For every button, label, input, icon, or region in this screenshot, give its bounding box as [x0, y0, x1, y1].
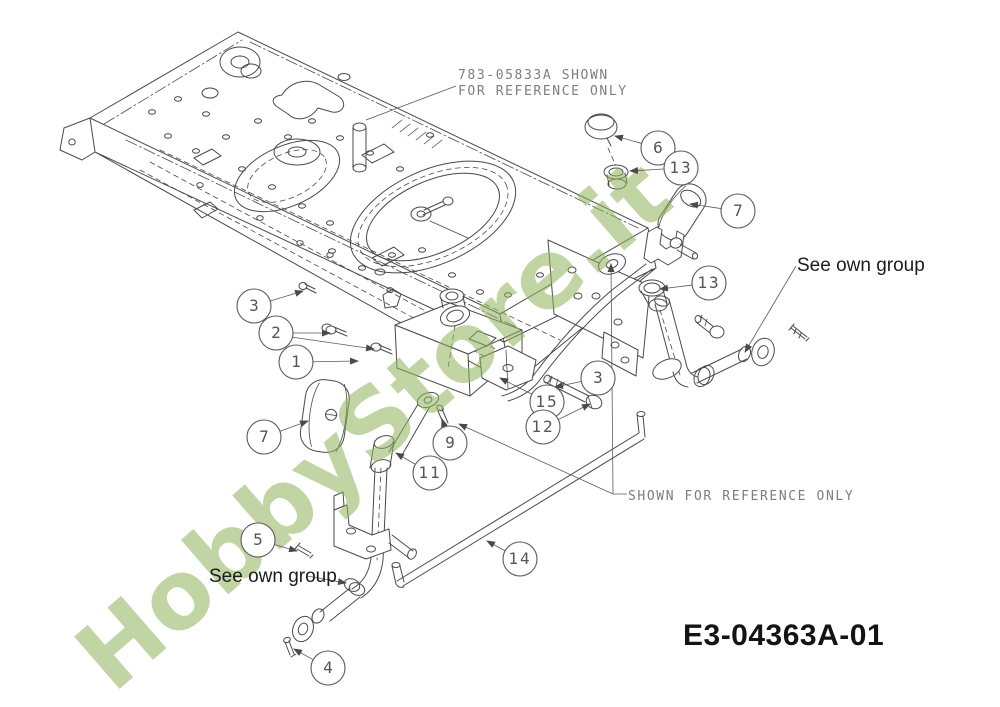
ref-note-line2: FOR REFERENCE ONLY	[458, 84, 628, 99]
callout-number-3: 3	[593, 368, 603, 387]
see-own-group-label-left: See own group	[209, 566, 337, 587]
callout-number-12: 12	[531, 417, 554, 436]
callout-number-15: 15	[535, 392, 558, 411]
callout-number-9: 9	[445, 433, 455, 452]
callout-number-13: 13	[697, 273, 720, 292]
shown-reference-note: SHOWN FOR REFERENCE ONLY	[628, 489, 854, 504]
see-own-group-label-right: See own group	[797, 255, 925, 276]
callout-number-13: 13	[669, 158, 692, 177]
callout-number-5: 5	[253, 530, 263, 549]
callout-number-11: 11	[418, 463, 441, 482]
exploded-parts-diagram: HobbyStore.it 783-05833A SHOWN FOR REFER…	[0, 0, 1000, 707]
callout-number-2: 2	[271, 323, 281, 342]
callout-number-4: 4	[323, 658, 333, 677]
drawing-number: E3-04363A-01	[683, 619, 884, 652]
callout-number-7: 7	[733, 201, 743, 220]
callout-number-14: 14	[508, 549, 531, 568]
ref-note-line1: 783-05833A SHOWN	[458, 68, 609, 83]
callout-number-6: 6	[653, 138, 663, 157]
callout-number-7: 7	[259, 427, 269, 446]
callout-number-1: 1	[291, 352, 301, 371]
callout-number-3: 3	[249, 296, 259, 315]
parts-diagram-page: HobbyStore.it 783-05833A SHOWN FOR REFER…	[0, 0, 1000, 707]
